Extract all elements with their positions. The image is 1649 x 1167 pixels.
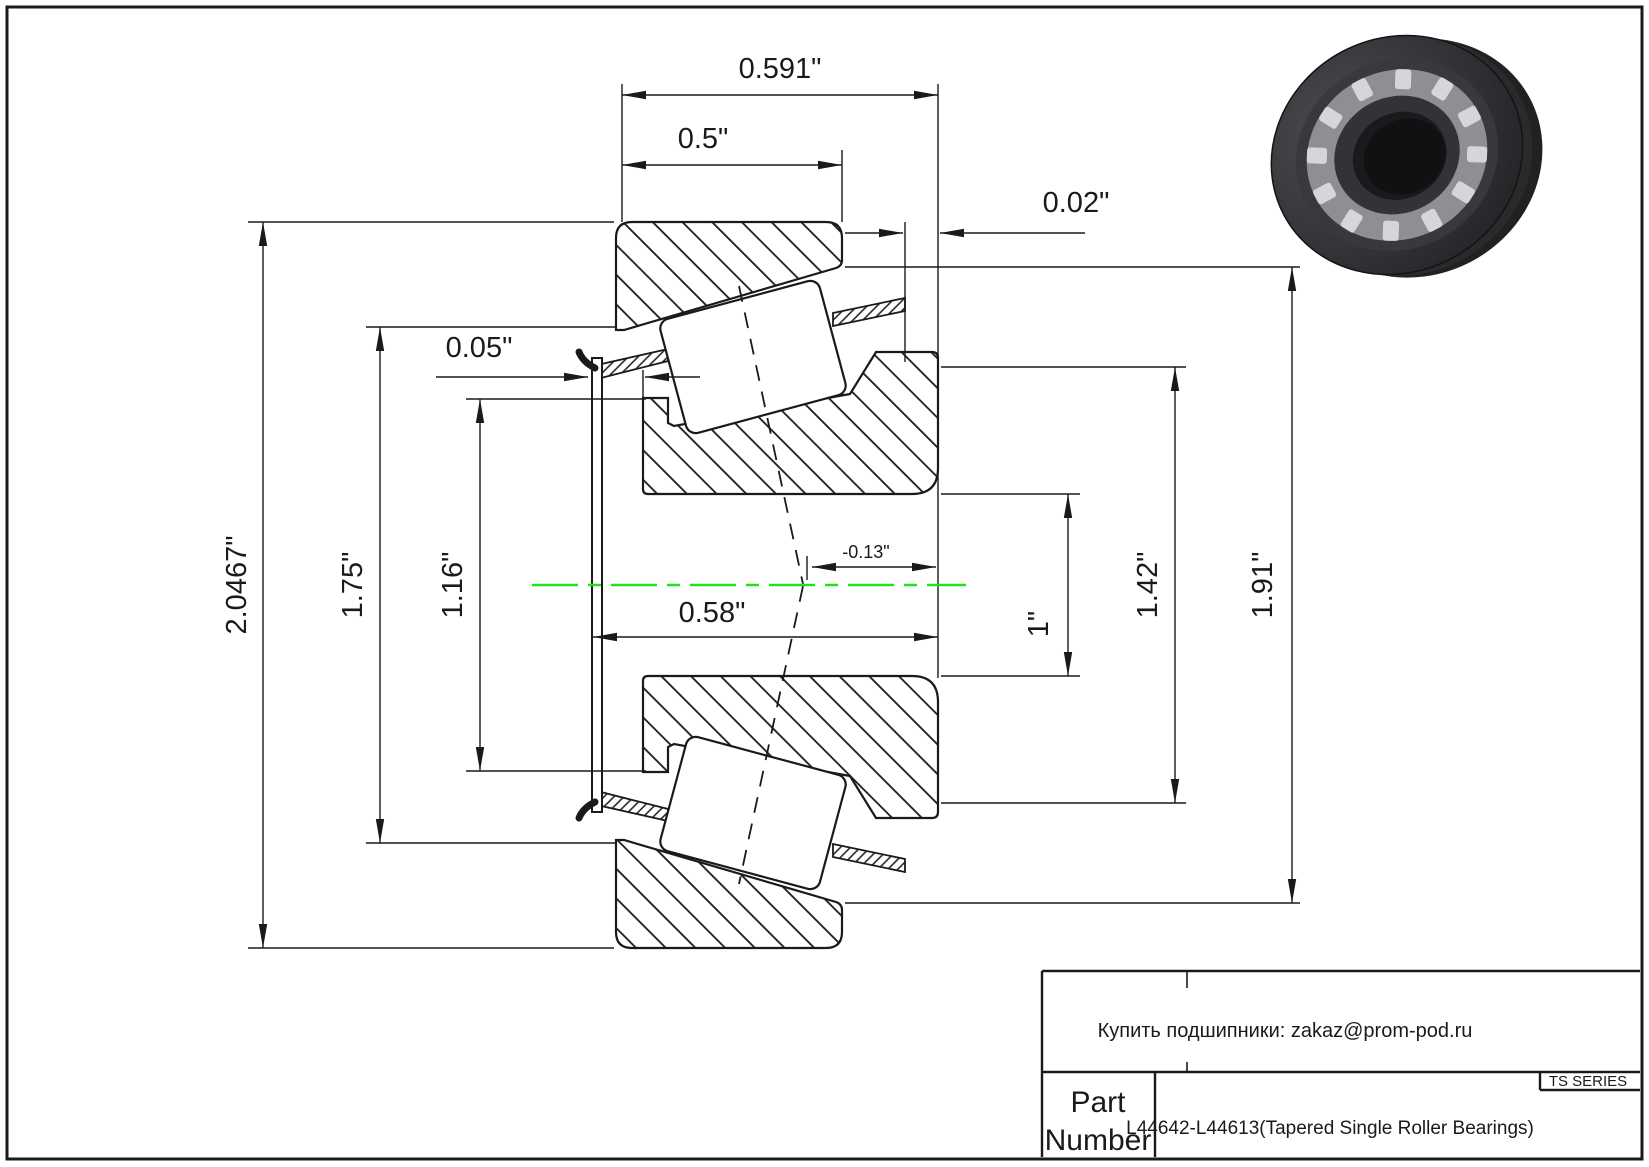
dim-cone-rib-od: 1.16" [437, 552, 469, 619]
dim-bore: 1" [1023, 611, 1055, 637]
dim-center-width: 0.58" [679, 597, 746, 629]
bearing-drawing-svg: 0.591" 0.5" 0.02" 2.0467" 1.75" 1.16" 0.… [0, 0, 1649, 1167]
dim-overall-width: 0.591" [739, 53, 822, 85]
part-number-text: L44642-L44613(Tapered Single Roller Bear… [1126, 1118, 1534, 1139]
drawing-page: 0.591" 0.5" 0.02" 2.0467" 1.75" 1.16" 0.… [0, 0, 1649, 1167]
bearing-photo [1229, 0, 1585, 329]
part-label-line1: Part [1070, 1086, 1126, 1119]
series-label: TS SERIES [1549, 1073, 1627, 1090]
dim-washer-offset: 0.05" [446, 332, 513, 364]
dim-outer-diameter: 2.0467" [221, 536, 253, 635]
dim-cup-width: 0.5" [678, 123, 729, 155]
dim-standout: 0.02" [1043, 187, 1110, 219]
dim-cone-back-od: 1.42" [1132, 552, 1164, 619]
shop-contact-line: Купить подшипники: zakaz@prom-pod.ru [1098, 1020, 1473, 1042]
dim-cup-front-id: 1.75" [337, 552, 369, 619]
dim-cup-inner-od: 1.91" [1247, 552, 1279, 619]
dim-eff-center: -0.13" [842, 542, 889, 562]
